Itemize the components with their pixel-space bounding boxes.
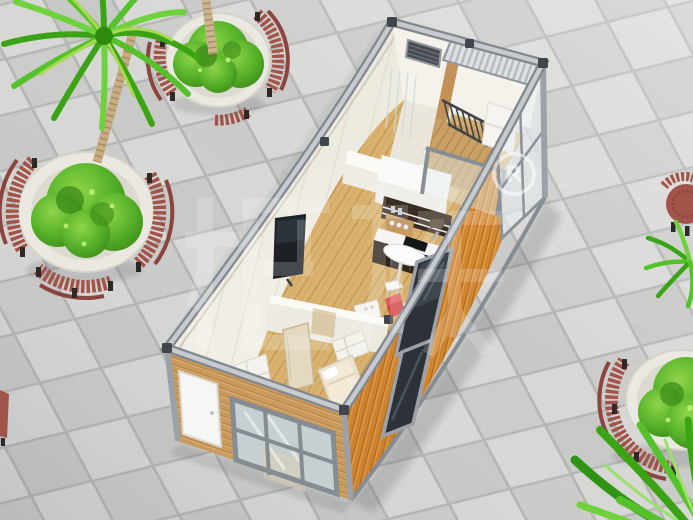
door-handle (210, 411, 214, 415)
entry-door[interactable] (179, 371, 221, 447)
registered-r: R (506, 163, 523, 188)
plaza-container-house-render: 柜族 ® (0, 0, 693, 520)
corner-post-right (543, 63, 545, 197)
